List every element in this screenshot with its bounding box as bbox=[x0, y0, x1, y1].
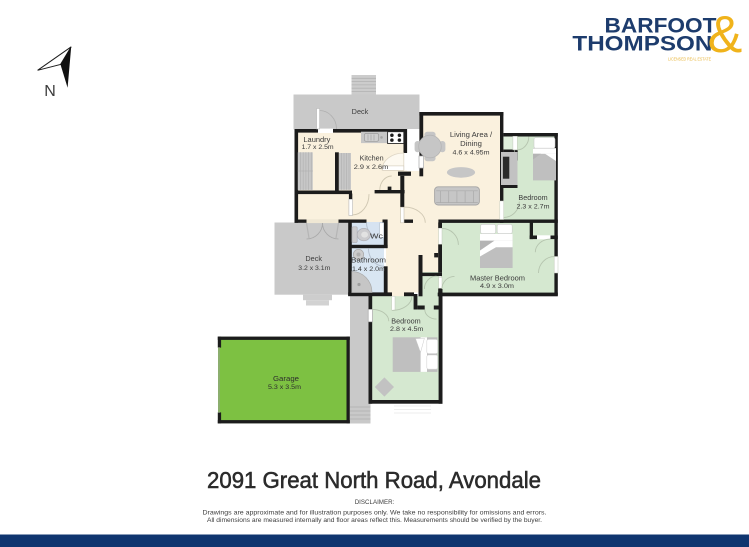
svg-text:Living Area /: Living Area / bbox=[450, 130, 492, 139]
svg-text:Laundry: Laundry bbox=[303, 135, 330, 144]
svg-text:LICENSED REAL ESTATE: LICENSED REAL ESTATE bbox=[668, 57, 711, 62]
svg-text:2091 Great North Road, Avondal: 2091 Great North Road, Avondale bbox=[207, 467, 541, 493]
svg-text:4.6 x 4.95m: 4.6 x 4.95m bbox=[453, 150, 490, 157]
svg-text:Deck: Deck bbox=[352, 107, 369, 116]
svg-text:Bedroom: Bedroom bbox=[391, 316, 420, 325]
svg-text:DISCLAIMER:: DISCLAIMER: bbox=[355, 499, 395, 506]
svg-text:Bedroom: Bedroom bbox=[518, 193, 547, 202]
svg-text:3.2 x 3.1m: 3.2 x 3.1m bbox=[298, 265, 330, 272]
svg-text:5.3 x 3.5m: 5.3 x 3.5m bbox=[268, 384, 301, 391]
svg-text:Master Bedroom: Master Bedroom bbox=[470, 273, 525, 282]
svg-text:2.3 x 2.7m: 2.3 x 2.7m bbox=[517, 204, 550, 211]
svg-text:1.7 x 2.5m: 1.7 x 2.5m bbox=[302, 144, 334, 151]
svg-text:Garage: Garage bbox=[273, 374, 299, 383]
svg-text:Wc: Wc bbox=[370, 231, 383, 240]
svg-text:Dining: Dining bbox=[460, 139, 482, 148]
svg-text:Bathroom: Bathroom bbox=[351, 255, 386, 264]
svg-text:Drawings are approximate and f: Drawings are approximate and for illustr… bbox=[203, 510, 547, 517]
svg-text:1.4 x 2.0m: 1.4 x 2.0m bbox=[352, 266, 385, 273]
svg-text:Deck: Deck bbox=[305, 254, 322, 263]
svg-text:2.9 x 2.6m: 2.9 x 2.6m bbox=[354, 164, 389, 171]
svg-text:All dimensions are measured in: All dimensions are measured internally a… bbox=[207, 517, 542, 524]
svg-text:THOMPSON: THOMPSON bbox=[572, 32, 712, 56]
svg-text:N: N bbox=[44, 83, 56, 100]
svg-text:&: & bbox=[708, 6, 743, 64]
svg-text:Kitchen: Kitchen bbox=[360, 153, 384, 162]
svg-text:4.9 x 3.0m: 4.9 x 3.0m bbox=[480, 283, 514, 290]
svg-text:2.8 x 4.5m: 2.8 x 4.5m bbox=[390, 326, 424, 333]
